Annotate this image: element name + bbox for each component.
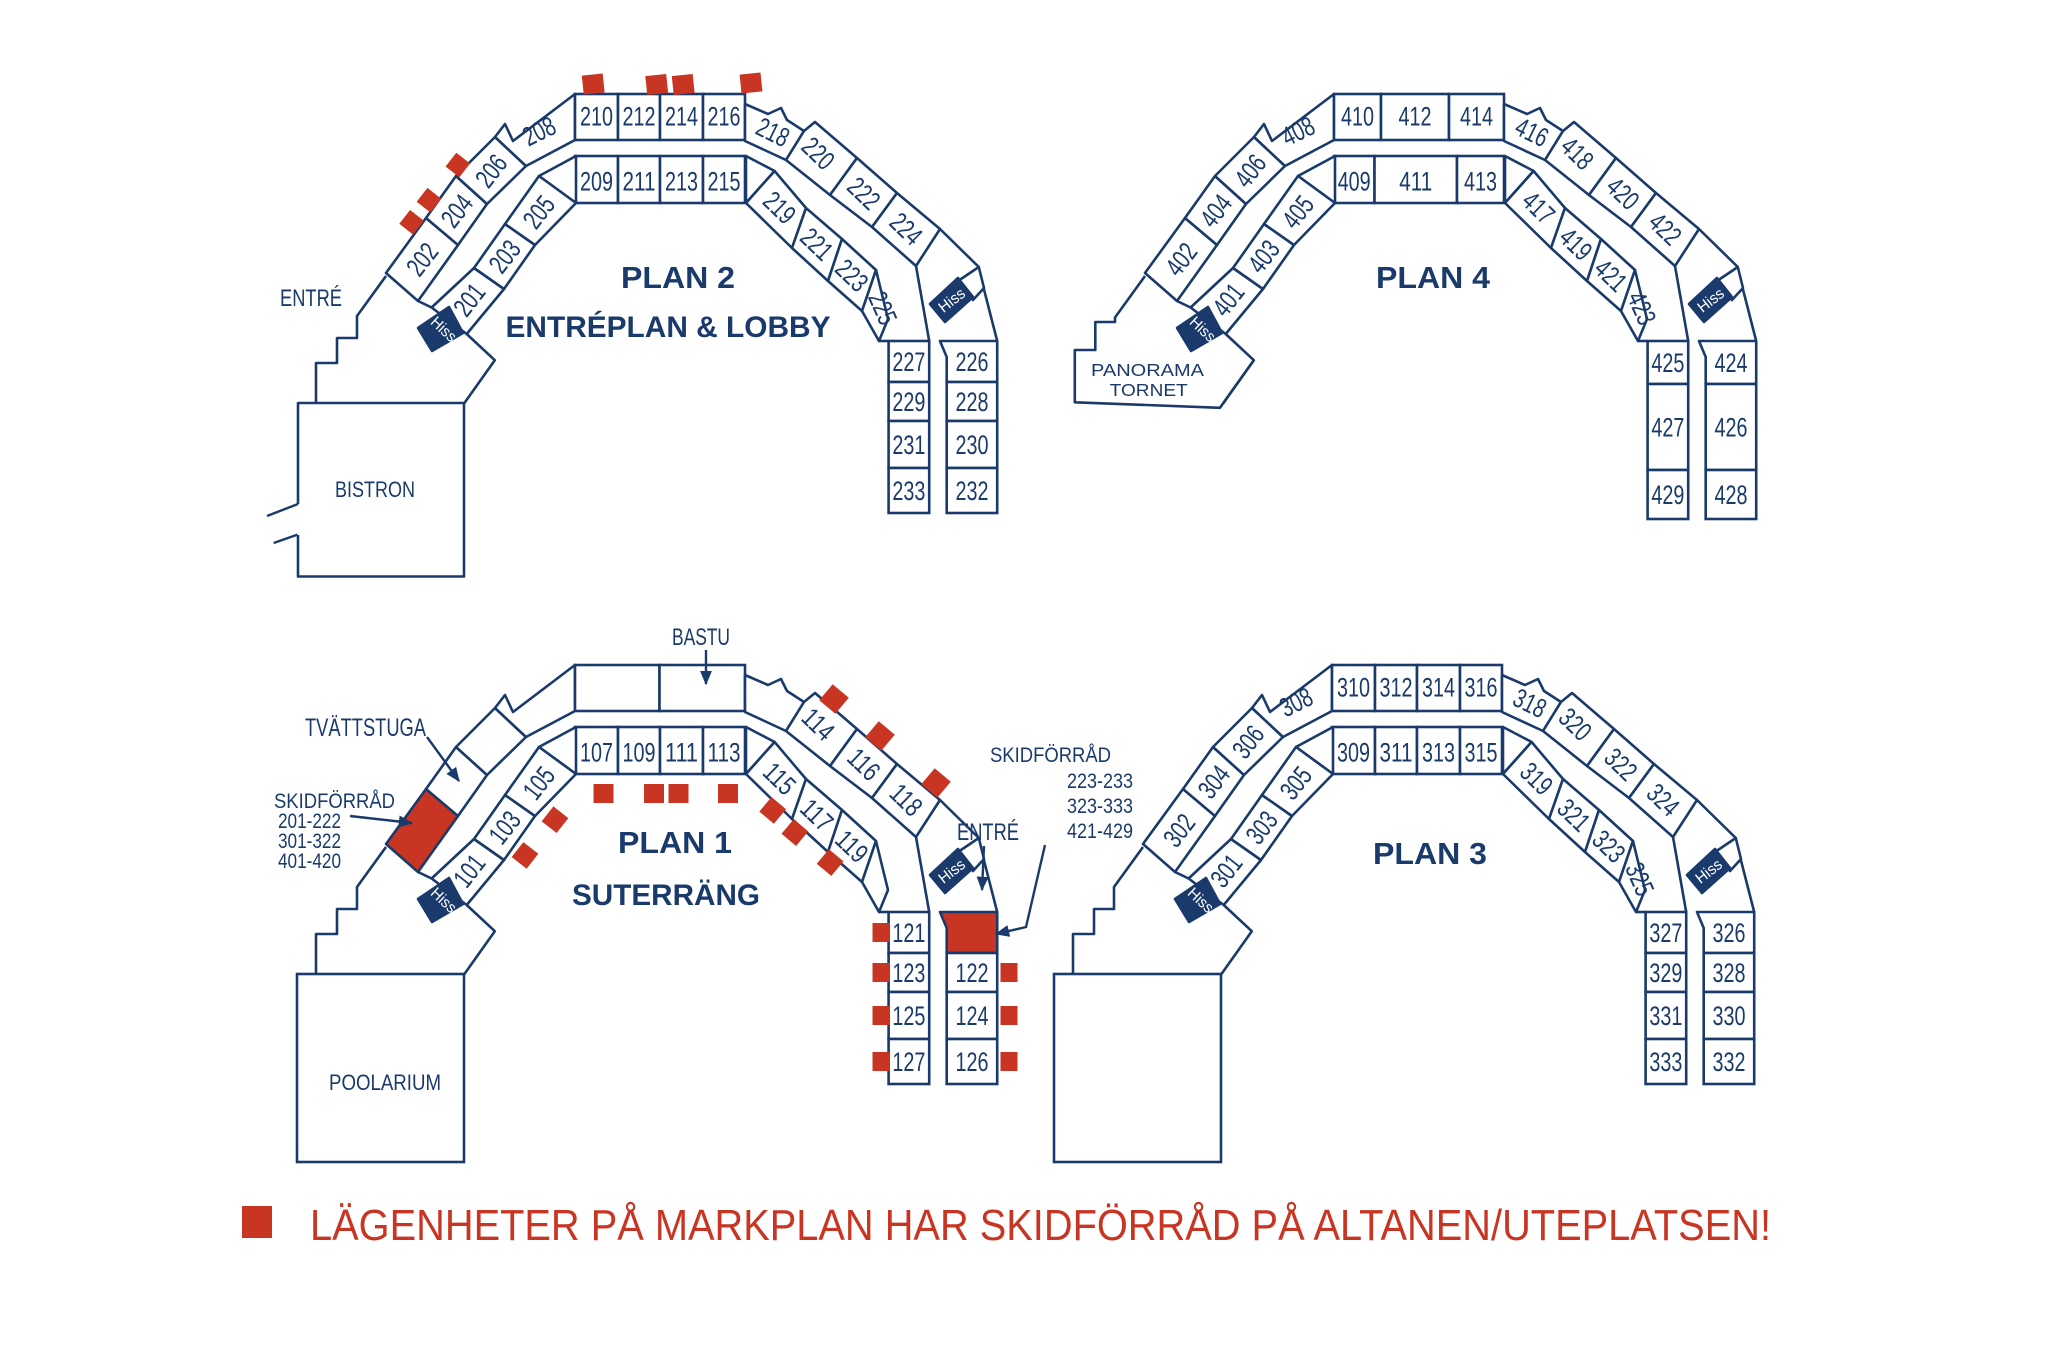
svg-text:125: 125 — [892, 1001, 925, 1031]
svg-text:424: 424 — [1715, 348, 1748, 378]
svg-text:LÄGENHETER PÅ MARKPLAN HAR SKI: LÄGENHETER PÅ MARKPLAN HAR SKIDFÖRRÅD PÅ… — [310, 1201, 1771, 1250]
svg-text:122: 122 — [956, 958, 989, 988]
svg-text:316: 316 — [1465, 673, 1498, 703]
svg-text:230: 230 — [956, 430, 989, 460]
svg-text:231: 231 — [892, 430, 925, 460]
svg-text:425: 425 — [1651, 348, 1684, 378]
svg-text:401-420: 401-420 — [278, 850, 341, 873]
svg-text:232: 232 — [956, 476, 989, 506]
svg-text:331: 331 — [1649, 1001, 1682, 1031]
svg-text:210: 210 — [580, 102, 613, 132]
svg-text:PLAN 1: PLAN 1 — [618, 825, 732, 860]
svg-text:ENTRÉPLAN & LOBBY: ENTRÉPLAN & LOBBY — [506, 310, 831, 344]
svg-text:PANORAMA: PANORAMA — [1091, 360, 1204, 380]
svg-text:428: 428 — [1715, 480, 1748, 510]
svg-text:328: 328 — [1713, 958, 1746, 988]
svg-text:421-429: 421-429 — [1067, 820, 1133, 843]
svg-text:309: 309 — [1337, 738, 1370, 768]
svg-text:227: 227 — [892, 347, 925, 377]
svg-text:333: 333 — [1649, 1047, 1682, 1077]
svg-text:323-333: 323-333 — [1067, 795, 1133, 818]
svg-text:223-233: 223-233 — [1067, 770, 1133, 793]
svg-text:211: 211 — [623, 167, 656, 197]
svg-text:414: 414 — [1460, 102, 1493, 132]
svg-text:TVÄTTSTUGA: TVÄTTSTUGA — [305, 714, 426, 742]
svg-text:209: 209 — [580, 167, 613, 197]
svg-text:ENTRÉ: ENTRÉ — [957, 819, 1019, 846]
svg-text:327: 327 — [1649, 918, 1682, 948]
svg-text:121: 121 — [892, 918, 925, 948]
svg-text:329: 329 — [1649, 958, 1682, 988]
svg-text:332: 332 — [1713, 1047, 1746, 1077]
svg-text:ENTRÉ: ENTRÉ — [280, 285, 342, 312]
svg-text:PLAN 3: PLAN 3 — [1373, 836, 1487, 871]
svg-text:326: 326 — [1713, 918, 1746, 948]
svg-text:113: 113 — [708, 738, 741, 768]
svg-text:410: 410 — [1341, 102, 1374, 132]
svg-text:233: 233 — [892, 476, 925, 506]
svg-text:229: 229 — [892, 387, 925, 417]
svg-text:PLAN 4: PLAN 4 — [1376, 260, 1491, 295]
svg-text:109: 109 — [623, 738, 656, 768]
svg-text:412: 412 — [1399, 102, 1432, 132]
svg-text:310: 310 — [1337, 673, 1370, 703]
svg-text:SKIDFÖRRÅD: SKIDFÖRRÅD — [990, 744, 1111, 767]
svg-text:330: 330 — [1713, 1001, 1746, 1031]
svg-text:123: 123 — [892, 958, 925, 988]
svg-text:107: 107 — [580, 738, 613, 768]
svg-text:PLAN 2: PLAN 2 — [621, 260, 735, 295]
svg-text:226: 226 — [956, 347, 989, 377]
svg-text:214: 214 — [665, 102, 698, 132]
svg-text:228: 228 — [956, 387, 989, 417]
svg-text:127: 127 — [892, 1047, 925, 1077]
svg-text:126: 126 — [956, 1047, 989, 1077]
svg-text:409: 409 — [1338, 167, 1371, 197]
svg-text:426: 426 — [1715, 413, 1748, 443]
svg-text:POOLARIUM: POOLARIUM — [329, 1070, 441, 1095]
svg-text:213: 213 — [665, 167, 698, 197]
svg-text:TORNET: TORNET — [1110, 380, 1188, 400]
svg-text:216: 216 — [708, 102, 741, 132]
svg-text:111: 111 — [665, 738, 698, 768]
svg-text:124: 124 — [956, 1001, 989, 1031]
svg-text:315: 315 — [1465, 738, 1498, 768]
svg-text:313: 313 — [1422, 738, 1455, 768]
svg-text:312: 312 — [1380, 673, 1413, 703]
svg-text:SUTERRÄNG: SUTERRÄNG — [572, 879, 760, 912]
svg-text:BASTU: BASTU — [672, 624, 730, 651]
svg-text:427: 427 — [1651, 413, 1684, 443]
svg-text:BISTRON: BISTRON — [335, 477, 415, 502]
svg-text:311: 311 — [1380, 738, 1413, 768]
svg-text:314: 314 — [1422, 673, 1455, 703]
svg-text:411: 411 — [1399, 167, 1432, 197]
svg-text:215: 215 — [708, 167, 741, 197]
svg-text:413: 413 — [1464, 167, 1497, 197]
svg-text:212: 212 — [623, 102, 656, 132]
svg-text:429: 429 — [1651, 480, 1684, 510]
